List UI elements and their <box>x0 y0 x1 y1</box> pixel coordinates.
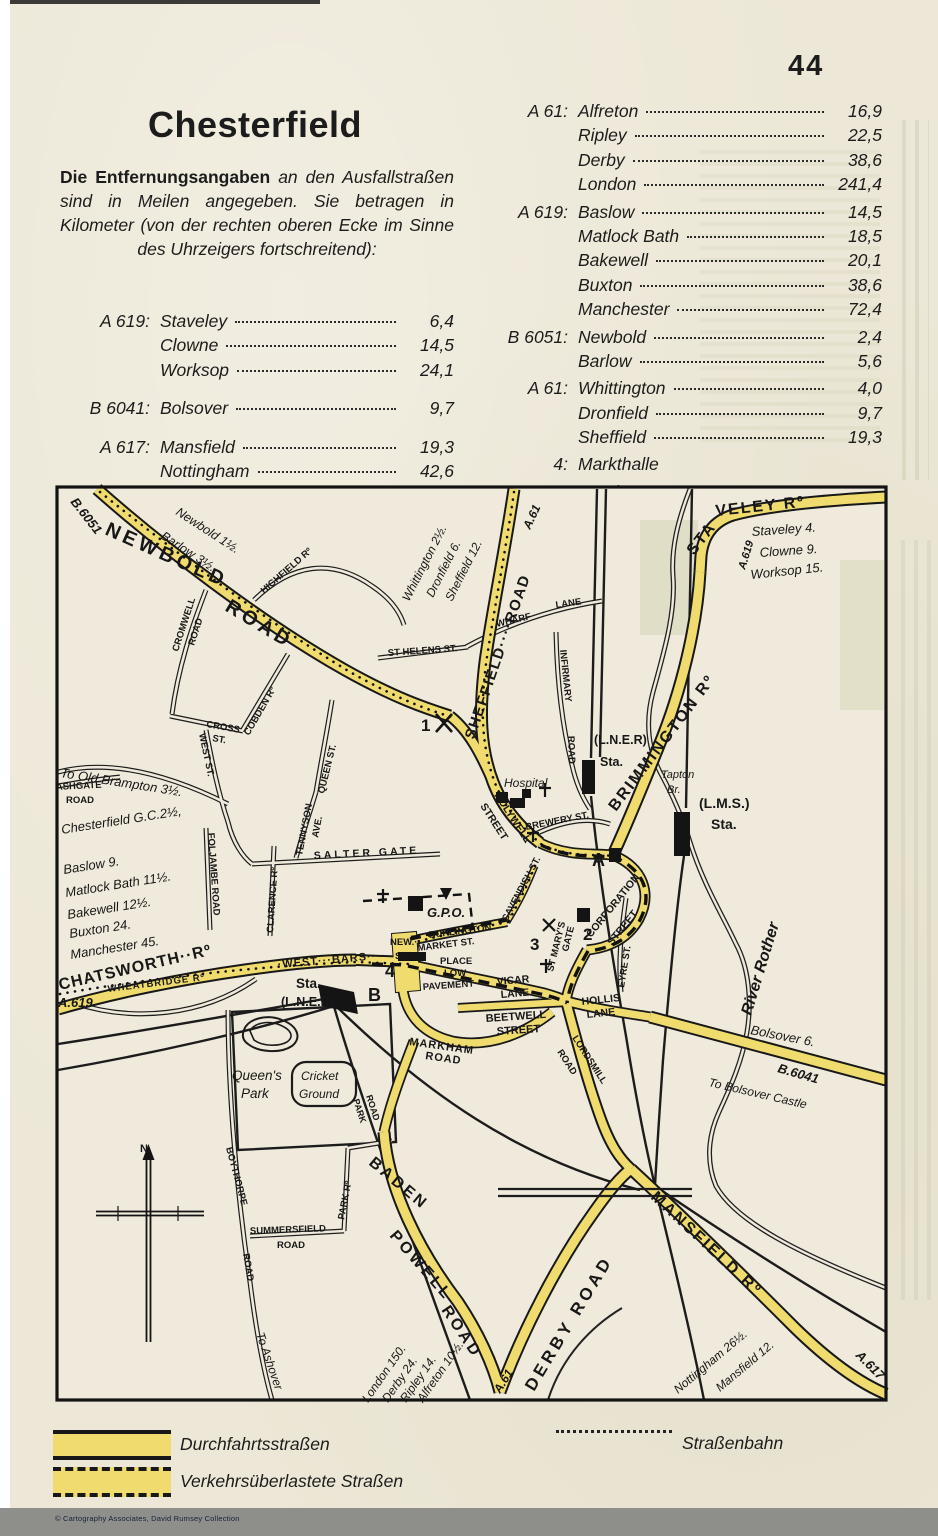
map-label: A <box>592 850 605 870</box>
lms-station <box>674 812 690 856</box>
map-label: PLACE <box>440 956 472 967</box>
lner-station-north <box>582 760 595 794</box>
map-label: Br. <box>667 784 681 796</box>
map-label: ST. <box>211 733 226 746</box>
city-map: NEWBOLDROADSHEFFIELD····ROADSTAVELEY RºB… <box>0 0 938 1536</box>
map-label: Cricket <box>301 1069 339 1083</box>
map-label: (L.M.S.) <box>699 795 750 811</box>
legend-congested-road-label: Verkehrsüberlastete Straßen <box>180 1471 403 1492</box>
map-label: ROAD <box>66 795 94 806</box>
map-label: Park <box>241 1086 270 1101</box>
map-label: G.P.O. <box>427 905 465 920</box>
map-label: ROAD <box>277 1240 305 1251</box>
legend-tram-label: Straßenbahn <box>682 1433 783 1454</box>
map-label: NEW.·· <box>390 937 421 948</box>
map-label: (L.N.E.R) <box>594 733 647 747</box>
map-label: B <box>368 985 381 1005</box>
map-label: 1 <box>421 716 430 735</box>
hotel-a-building <box>609 848 621 862</box>
map-label: Tapton <box>661 769 694 781</box>
map-label: Hospital <box>504 776 548 790</box>
map-label: LANE <box>500 987 530 1001</box>
legend-through-road-label: Durchfahrtsstraßen <box>180 1434 330 1455</box>
copyright-text: © Cartography Associates, David Rumsey C… <box>55 1514 240 1523</box>
map-label: Queen's <box>232 1068 282 1083</box>
map-label: Sta. <box>296 976 321 991</box>
map-label: SQ.· <box>395 951 415 962</box>
bleed-through <box>840 560 884 710</box>
legend-tram-swatch <box>556 1430 672 1433</box>
hospital-building <box>522 789 531 798</box>
atlas-page: 44 Chesterfield Die Entfernungsangaben a… <box>0 0 938 1536</box>
map-label: A.619 <box>57 995 93 1010</box>
map-label: Sta. <box>600 755 623 769</box>
map-label: LOW <box>444 968 466 979</box>
map-label: N. <box>140 1143 151 1155</box>
footer-bar: © Cartography Associates, David Rumsey C… <box>0 1508 938 1536</box>
legend-through-road-swatch <box>53 1430 171 1460</box>
map-label: ROAD <box>565 736 577 764</box>
hotel-2-building <box>577 908 590 922</box>
map-label: 3 <box>530 935 539 954</box>
legend-congested-road-swatch <box>53 1467 171 1497</box>
map-label: 4 <box>385 961 395 981</box>
map-label: (L.N.E.R) <box>281 995 334 1009</box>
gpo-building <box>408 896 423 911</box>
map-label: Ground <box>299 1087 339 1101</box>
map-label: Sta. <box>711 816 737 832</box>
map-label: 2 <box>583 925 592 944</box>
